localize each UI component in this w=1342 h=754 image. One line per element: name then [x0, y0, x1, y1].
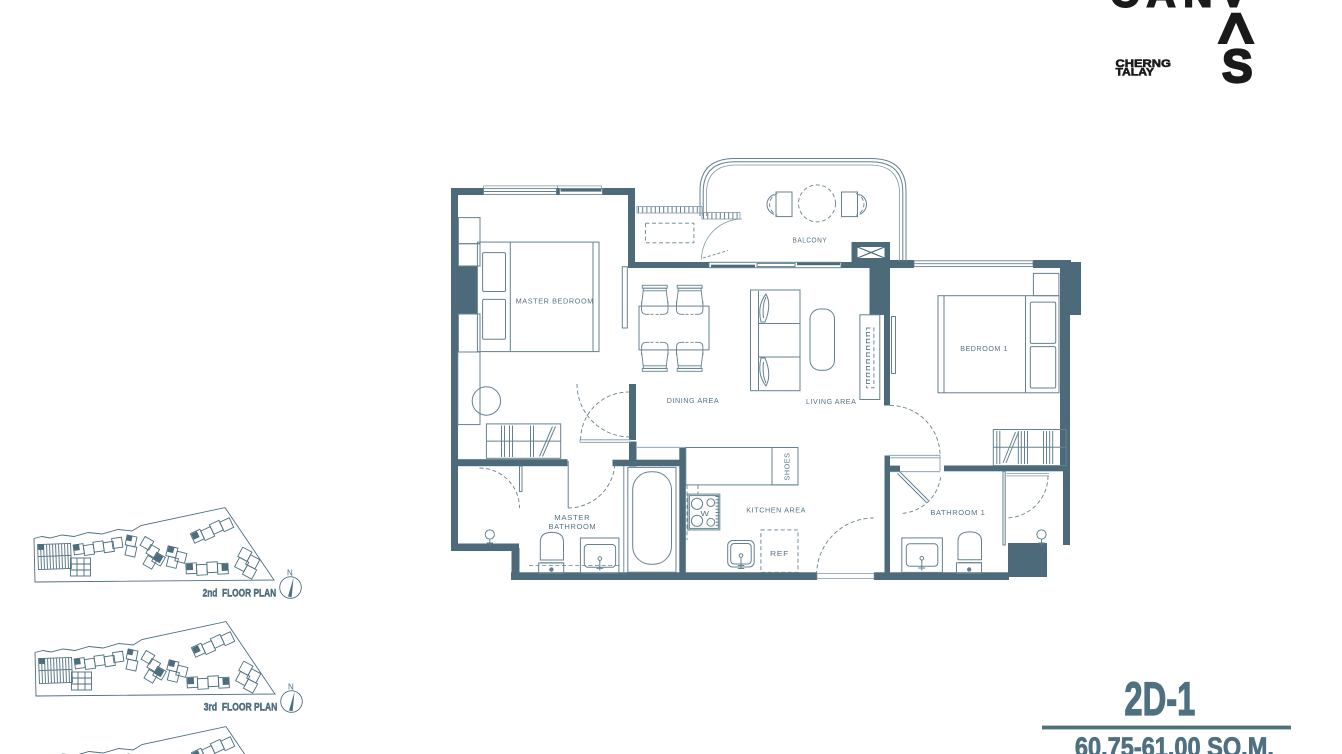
svg-text:3rd FLOOR PLAN: 3rd FLOOR PLAN: [204, 701, 277, 713]
svg-text:2D-1: 2D-1: [1124, 672, 1195, 725]
svg-text:2nd FLOOR PLAN: 2nd FLOOR PLAN: [203, 587, 277, 599]
svg-text:LIVING AREA: LIVING AREA: [806, 397, 857, 406]
svg-text:REF: REF: [770, 549, 789, 558]
svg-text:TALAY: TALAY: [1116, 66, 1155, 78]
svg-text:KITCHEN AREA: KITCHEN AREA: [746, 506, 806, 515]
svg-text:W: W: [701, 509, 711, 518]
svg-text:S: S: [1222, 40, 1253, 92]
svg-text:BALCONY: BALCONY: [793, 235, 828, 244]
svg-text:SHOES: SHOES: [783, 453, 792, 481]
svg-text:DINING AREA: DINING AREA: [667, 396, 720, 405]
svg-text:MASTER BEDROOM: MASTER BEDROOM: [516, 297, 594, 306]
svg-text:MASTER: MASTER: [554, 513, 590, 522]
svg-text:BEDROOM 1: BEDROOM 1: [960, 344, 1008, 353]
svg-text:60.75-61.00 SQ.M.: 60.75-61.00 SQ.M.: [1075, 732, 1274, 754]
svg-text:BATHROOM 1: BATHROOM 1: [930, 508, 985, 517]
svg-text:BATHROOM: BATHROOM: [549, 522, 597, 531]
